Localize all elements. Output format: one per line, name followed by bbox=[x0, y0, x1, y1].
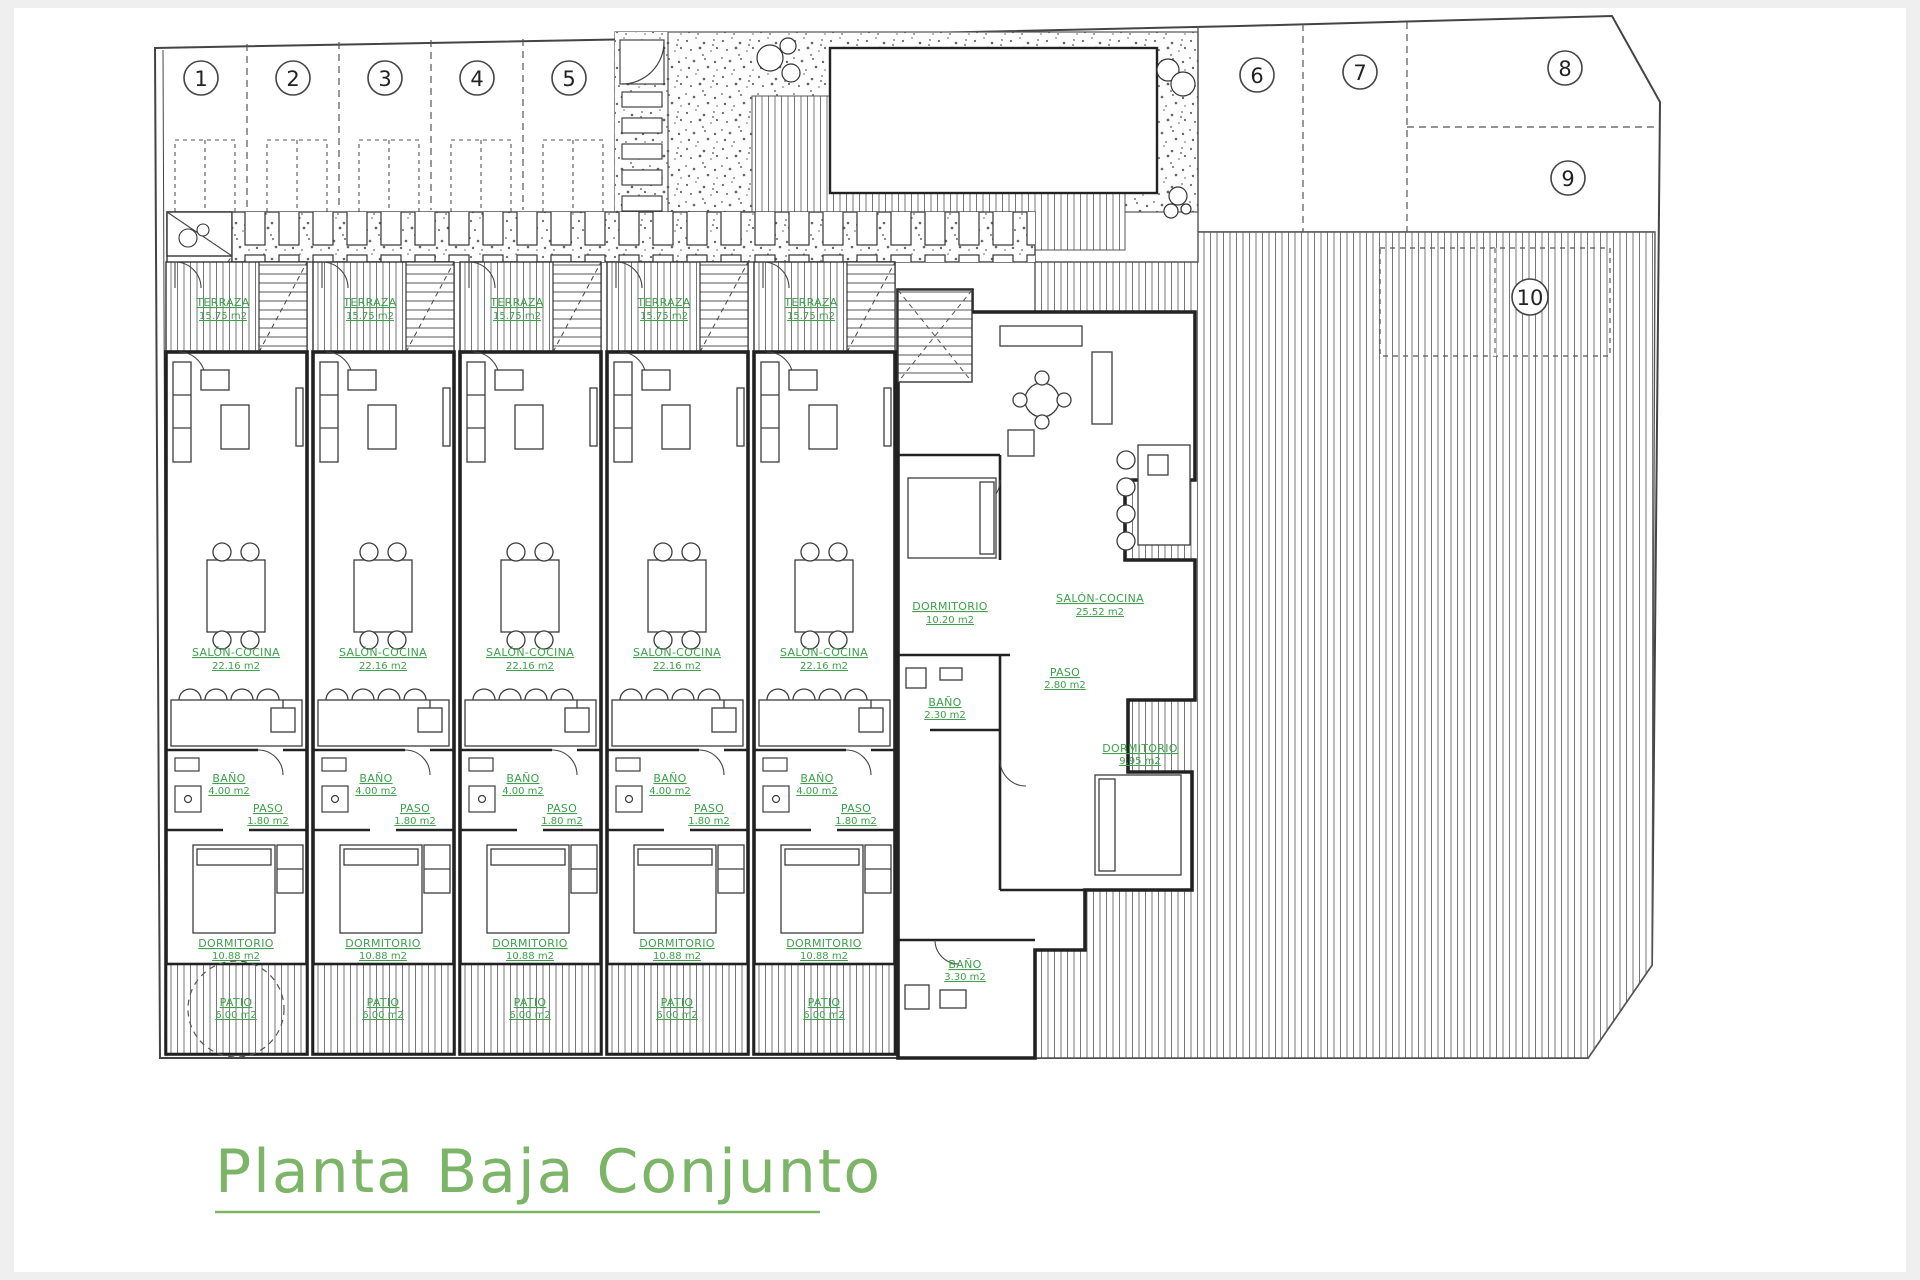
title-text: Planta Baja Conjunto bbox=[215, 1137, 882, 1207]
townhouse-unit-3 bbox=[460, 262, 601, 1054]
plot-3: 3 bbox=[378, 67, 391, 91]
plot-2: 2 bbox=[286, 67, 299, 91]
u6-dorm1-area: 10.20 m2 bbox=[926, 615, 974, 626]
townhouse-unit-2 bbox=[313, 262, 454, 1054]
floor-plan-canvas: TERRAZA 15.75 m2 SALÓN-COCINA 22.16 m2 bbox=[0, 0, 1920, 1280]
u6-bano1-area: 2.30 m2 bbox=[924, 710, 966, 721]
swimming-pool bbox=[830, 48, 1157, 193]
townhouse-unit-4 bbox=[607, 262, 748, 1054]
u6-bano2-label: BAÑO bbox=[948, 958, 981, 971]
u6-dorm2-label: DORMITORIO bbox=[1102, 742, 1177, 755]
u6-dorm2-area: 9.95 m2 bbox=[1119, 756, 1161, 767]
u6-bano2-area: 3.30 m2 bbox=[944, 972, 986, 983]
plot-7: 7 bbox=[1353, 61, 1366, 85]
plot-5: 5 bbox=[562, 67, 575, 91]
townhouse-unit-5 bbox=[754, 262, 895, 1054]
u6-paso-label: PASO bbox=[1050, 666, 1080, 679]
floor-plan-page: TERRAZA 15.75 m2 SALÓN-COCINA 22.16 m2 bbox=[0, 0, 1920, 1280]
plot-1: 1 bbox=[194, 67, 207, 91]
plot-4: 4 bbox=[470, 67, 483, 91]
plot-9: 9 bbox=[1561, 167, 1574, 191]
plot-10: 10 bbox=[1517, 286, 1544, 310]
walkway bbox=[232, 212, 1035, 262]
drawing-title: Planta Baja Conjunto bbox=[215, 1137, 882, 1212]
u6-dorm1-label: DORMITORIO bbox=[912, 600, 987, 613]
u6-bano1-label: BAÑO bbox=[928, 696, 961, 709]
u6-paso-area: 2.80 m2 bbox=[1044, 680, 1086, 691]
plot-6: 6 bbox=[1250, 64, 1263, 88]
u6-salon-label: SALÓN-COCINA bbox=[1056, 592, 1144, 605]
townhouse-unit-1 bbox=[166, 262, 307, 1054]
u6-salon-area: 25.52 m2 bbox=[1076, 607, 1124, 618]
plot-8: 8 bbox=[1558, 57, 1571, 81]
